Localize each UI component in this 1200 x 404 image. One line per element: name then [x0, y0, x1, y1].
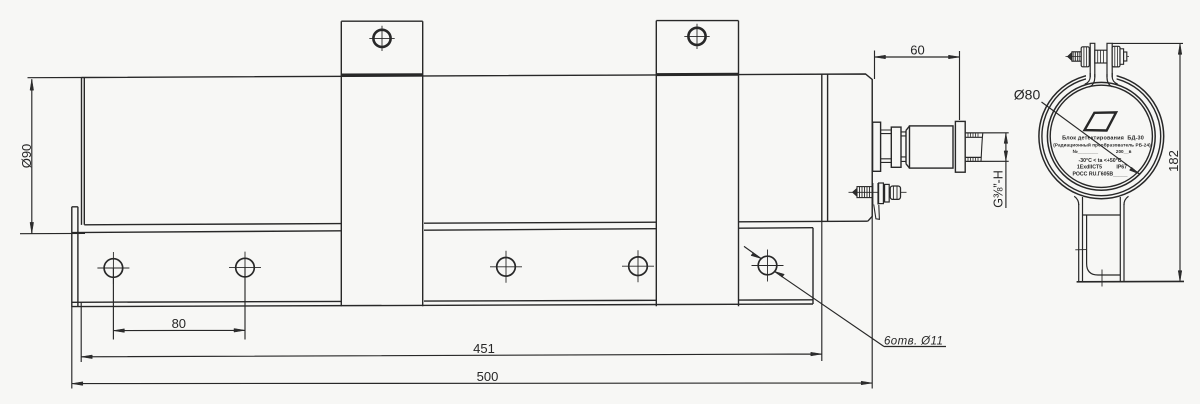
svg-text:80: 80: [172, 316, 186, 331]
svg-text:№________ 200__в: №________ 200__в: [1072, 149, 1131, 154]
svg-text:60: 60: [910, 43, 924, 58]
svg-text:1ExdIICT5 IP67: 1ExdIICT5 IP67: [1077, 164, 1127, 170]
svg-text:Ø90: Ø90: [19, 144, 34, 169]
svg-text:(Радиационный преобразователь: (Радиационный преобразователь РБ-24): [1053, 142, 1151, 148]
svg-text:РОСС RU.Г605В_____: РОСС RU.Г605В_____: [1072, 171, 1127, 177]
svg-text:G⅜”-H: G⅜”-H: [992, 170, 1006, 208]
svg-text:6отв. Ø11: 6отв. Ø11: [884, 336, 943, 348]
svg-text:-30°С < tа <+50°С: -30°С < tа <+50°С: [1079, 158, 1122, 164]
svg-text:Ø80: Ø80: [1014, 87, 1041, 103]
svg-text:Блок детектирования БД-30: Блок детектирования БД-30: [1062, 135, 1144, 141]
svg-text:451: 451: [473, 341, 495, 356]
svg-text:182: 182: [1166, 150, 1181, 172]
svg-text:500: 500: [477, 369, 499, 384]
